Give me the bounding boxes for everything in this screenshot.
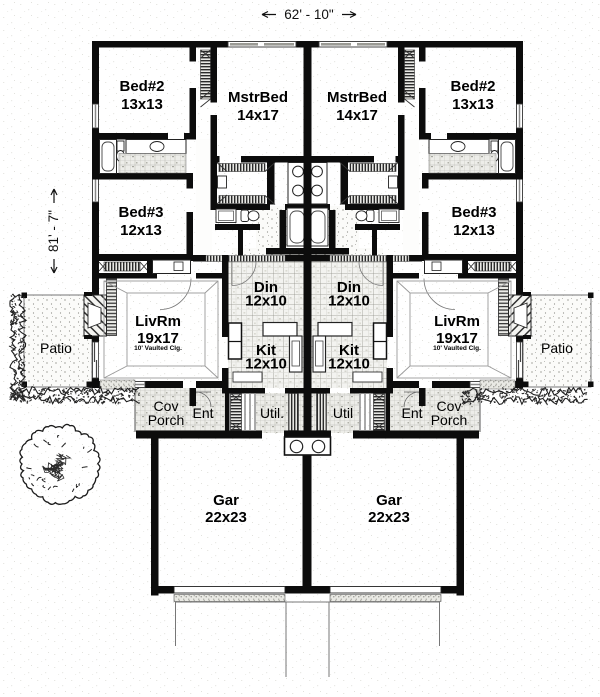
- svg-text:13x13: 13x13: [452, 96, 494, 113]
- svg-text:12x13: 12x13: [453, 222, 495, 239]
- svg-text:Bed#2: Bed#2: [450, 78, 495, 95]
- svg-text:12x10: 12x10: [328, 293, 370, 310]
- svg-text:Porch: Porch: [148, 412, 185, 428]
- svg-text:62' - 10": 62' - 10": [284, 7, 334, 22]
- svg-text:MstrBed: MstrBed: [228, 89, 288, 106]
- svg-text:Porch: Porch: [431, 412, 468, 428]
- svg-text:10' Vaulted Clg.: 10' Vaulted Clg.: [134, 345, 182, 352]
- svg-text:14x17: 14x17: [237, 107, 279, 124]
- svg-text:Util.: Util.: [260, 405, 284, 421]
- svg-text:Bed#2: Bed#2: [119, 78, 164, 95]
- svg-text:12x10: 12x10: [245, 356, 287, 373]
- svg-text:Gar: Gar: [213, 492, 239, 509]
- svg-text:MstrBed: MstrBed: [327, 89, 387, 106]
- svg-text:Patio: Patio: [541, 340, 573, 356]
- svg-text:Ent: Ent: [192, 405, 213, 421]
- svg-text:Util: Util: [333, 405, 353, 421]
- svg-text:22x23: 22x23: [205, 509, 247, 526]
- svg-text:Ent: Ent: [401, 405, 422, 421]
- svg-text:12x10: 12x10: [328, 356, 370, 373]
- svg-text:81' - 7": 81' - 7": [46, 210, 61, 252]
- svg-text:13x13: 13x13: [121, 96, 163, 113]
- svg-text:14x17: 14x17: [336, 107, 378, 124]
- svg-text:LivRm: LivRm: [135, 313, 181, 330]
- svg-text:10' Vaulted Clg.: 10' Vaulted Clg.: [433, 345, 481, 352]
- svg-text:12x13: 12x13: [120, 222, 162, 239]
- svg-text:Patio: Patio: [40, 340, 72, 356]
- svg-text:LivRm: LivRm: [434, 313, 480, 330]
- svg-text:Gar: Gar: [376, 492, 402, 509]
- svg-text:Bed#3: Bed#3: [451, 204, 496, 221]
- svg-text:22x23: 22x23: [368, 509, 410, 526]
- svg-text:Bed#3: Bed#3: [118, 204, 163, 221]
- svg-text:12x10: 12x10: [245, 293, 287, 310]
